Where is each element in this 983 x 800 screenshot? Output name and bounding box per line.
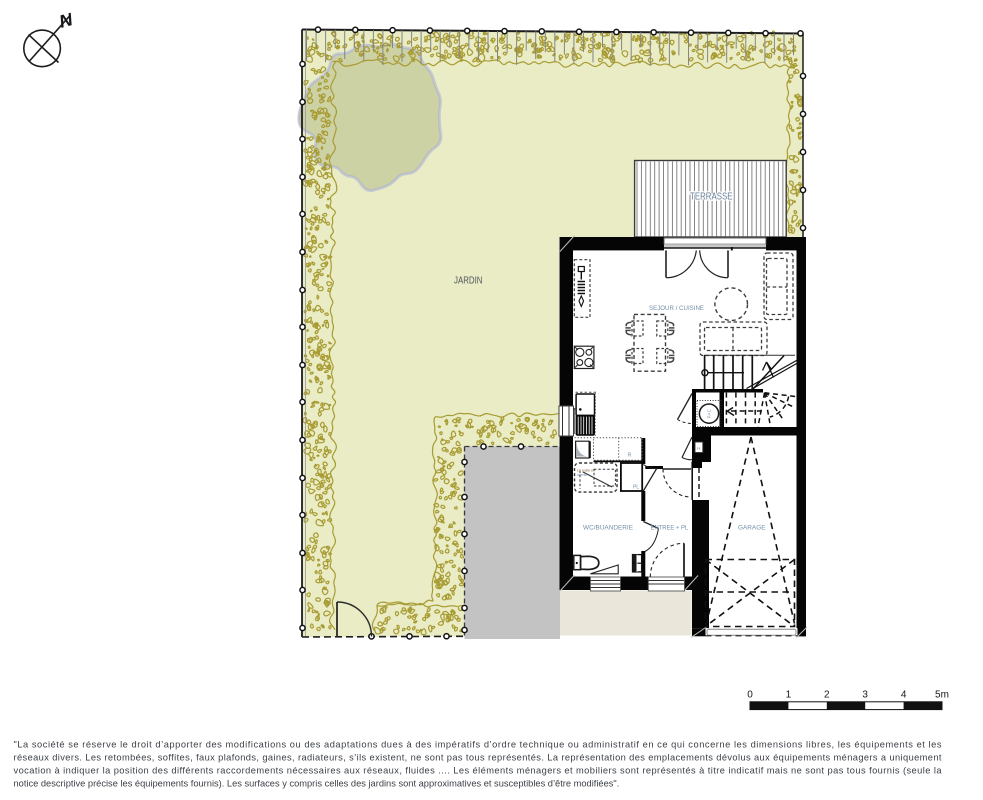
svg-text:N: N [57,9,76,32]
svg-text:PAC: PAC [707,409,712,418]
svg-text:SEJOUR / CUISINE: SEJOUR / CUISINE [649,305,704,312]
svg-text:R: R [628,453,632,459]
svg-text:JARDIN: JARDIN [454,276,483,287]
svg-text:TERRASSE: TERRASSE [690,192,733,203]
svg-text:"La société se réserve le droi: "La société se réserve le droit d’apport… [14,740,942,750]
svg-text:4: 4 [901,690,907,701]
svg-text:WC/BUANDERIE: WC/BUANDERIE [583,524,633,531]
svg-text:attente: attente [577,473,587,477]
svg-text:1: 1 [786,690,792,701]
svg-text:2: 2 [824,690,830,701]
svg-text:ENTREE + PL: ENTREE + PL [651,524,689,531]
svg-text:PL: PL [633,485,639,491]
svg-text:réseaux divers. Les retombées,: réseaux divers. Les retombées, soffites,… [14,753,942,763]
svg-text:vocation à indiquer la positio: vocation à indiquer la position des diff… [14,766,943,776]
svg-text:0: 0 [747,690,753,701]
svg-text:5m: 5m [935,690,949,701]
svg-text:3: 3 [862,690,868,701]
svg-text:H: H [697,446,700,451]
svg-text:GARAGE: GARAGE [738,524,766,531]
svg-text:LV poste en: LV poste en [577,469,595,473]
svg-text:notice descriptive précise les: notice descriptive précise les équipemen… [14,779,620,789]
